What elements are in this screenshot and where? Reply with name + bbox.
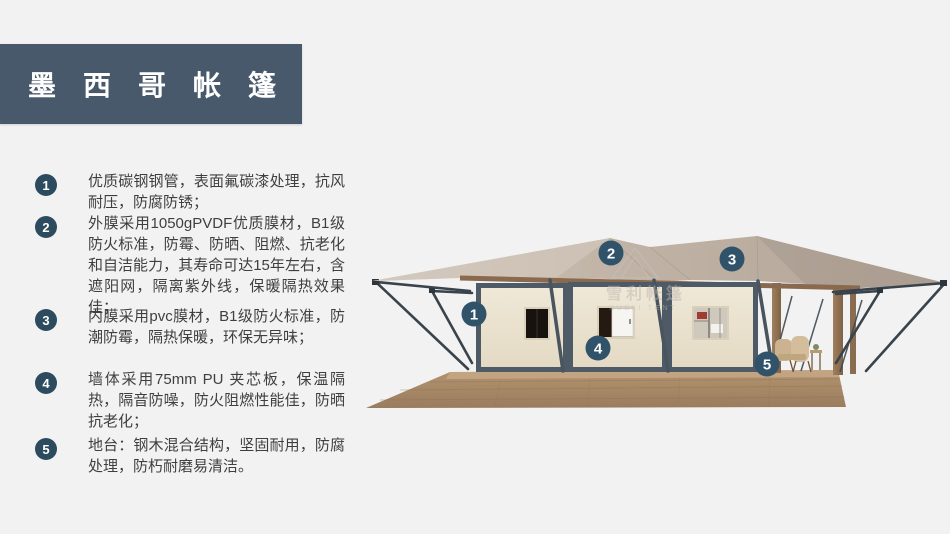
title-banner: 墨西哥帐篷	[0, 44, 302, 124]
window-3	[692, 306, 729, 340]
feature-text-5: 地台：钢木混合结构，坚固耐用，防腐处理，防朽耐磨易清洁。	[88, 435, 345, 477]
bullet-number-2: 2	[35, 216, 57, 238]
feature-item-1: 1 优质碳钢钢管，表面氟碳漆处理，抗风耐压，防腐防锈；	[35, 171, 347, 213]
feature-text-2: 外膜采用1050gPVDF优质膜材，B1级防火标准，防霉、防晒、阻燃、抗老化和自…	[88, 213, 345, 318]
callout-4: 4	[586, 336, 611, 361]
tent-illustration: 雪利帐篷 XUELI TENT 1 2 3 4	[360, 220, 950, 420]
bullet-number-5: 5	[35, 438, 57, 460]
feature-text-3: 内膜采用pvc膜材，B1级防火标准，防潮防霉，隔热保暖，环保无异味；	[88, 306, 345, 348]
feature-item-2: 2 外膜采用1050gPVDF优质膜材，B1级防火标准，防霉、防晒、阻燃、抗老化…	[35, 213, 347, 318]
tent-roof	[372, 236, 945, 288]
callout-1: 1	[462, 302, 487, 327]
page-title: 墨西哥帐篷	[0, 64, 303, 104]
feature-text-4: 墙体采用75mm PU 夹芯板，保温隔热，隔音防噪，防火阻燃性能佳，防晒抗老化；	[88, 369, 345, 432]
left-guy-poles	[372, 279, 472, 369]
svg-text:2: 2	[607, 246, 615, 263]
camp-chairs	[774, 336, 822, 372]
window-1	[524, 307, 550, 340]
slide: 墨西哥帐篷 1 优质碳钢钢管，表面氟碳漆处理，抗风耐压，防腐防锈； 2 外膜采用…	[0, 0, 950, 534]
bullet-number-4: 4	[35, 372, 57, 394]
feature-item-3: 3 内膜采用pvc膜材，B1级防火标准，防潮防霉，隔热保暖，环保无异味；	[35, 306, 347, 348]
svg-text:1: 1	[470, 307, 478, 324]
svg-text:3: 3	[728, 252, 736, 269]
svg-text:5: 5	[763, 357, 771, 374]
bullet-number-3: 3	[35, 309, 57, 331]
svg-text:4: 4	[594, 341, 603, 358]
callout-5: 5	[755, 352, 780, 377]
watermark-en: XUELI TENT	[609, 303, 677, 312]
watermark-cn: 雪利帐篷	[606, 284, 686, 303]
feature-item-4: 4 墙体采用75mm PU 夹芯板，保温隔热，隔音防噪，防火阻燃性能佳，防晒抗老…	[35, 369, 347, 432]
callout-2: 2	[599, 241, 624, 266]
feature-item-5: 5 地台：钢木混合结构，坚固耐用，防腐处理，防朽耐磨易清洁。	[35, 435, 347, 477]
feature-text-1: 优质碳钢钢管，表面氟碳漆处理，抗风耐压，防腐防锈；	[88, 171, 345, 213]
porch	[772, 283, 862, 375]
callout-3: 3	[720, 247, 745, 272]
wood-deck	[366, 370, 846, 408]
bullet-number-1: 1	[35, 174, 57, 196]
